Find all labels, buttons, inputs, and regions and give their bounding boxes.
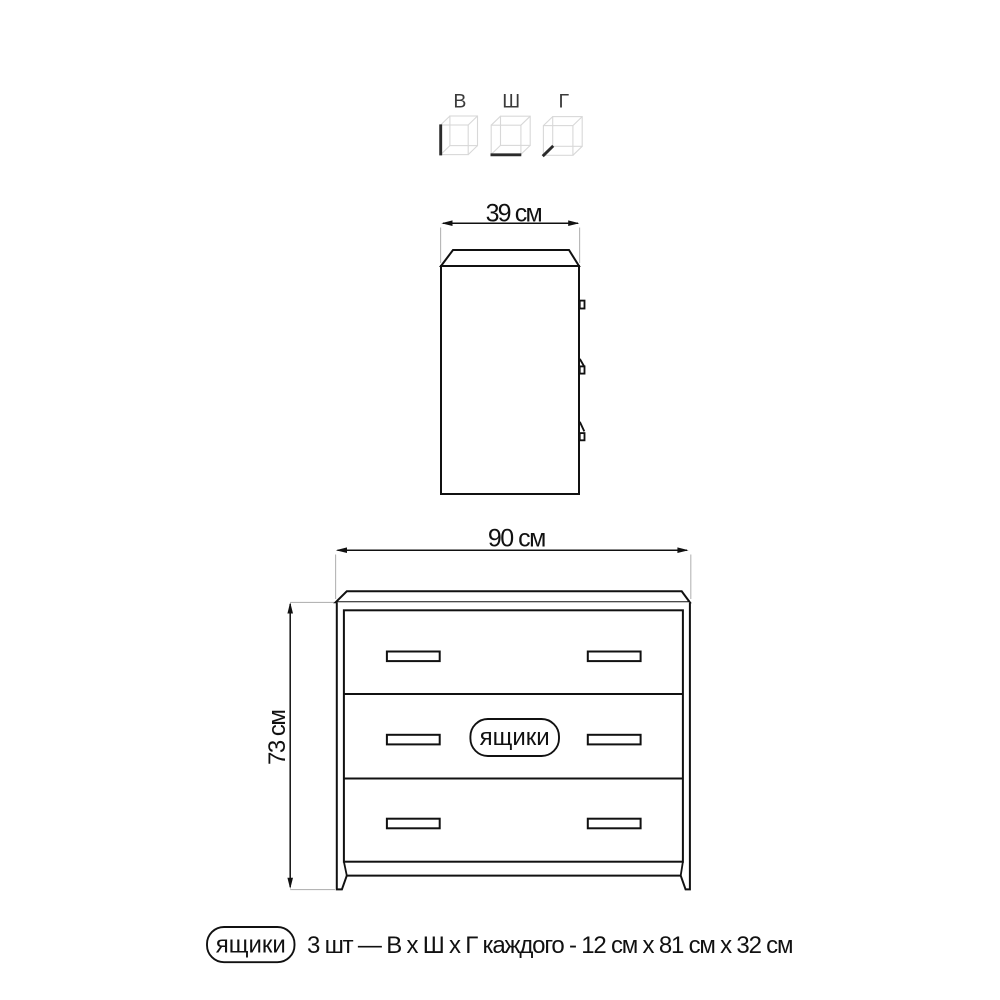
svg-text:В: В	[453, 91, 466, 113]
svg-text:Ш: Ш	[502, 91, 520, 113]
svg-text:73 см: 73 см	[264, 711, 291, 765]
svg-text:Г: Г	[559, 91, 570, 113]
svg-text:90 см: 90 см	[488, 525, 545, 553]
svg-text:ящики: ящики	[216, 932, 286, 959]
svg-text:3 шт — В х Ш х Г каждого - 12: 3 шт — В х Ш х Г каждого - 12 см х 81 см…	[307, 932, 792, 959]
svg-text:ящики: ящики	[480, 724, 550, 751]
